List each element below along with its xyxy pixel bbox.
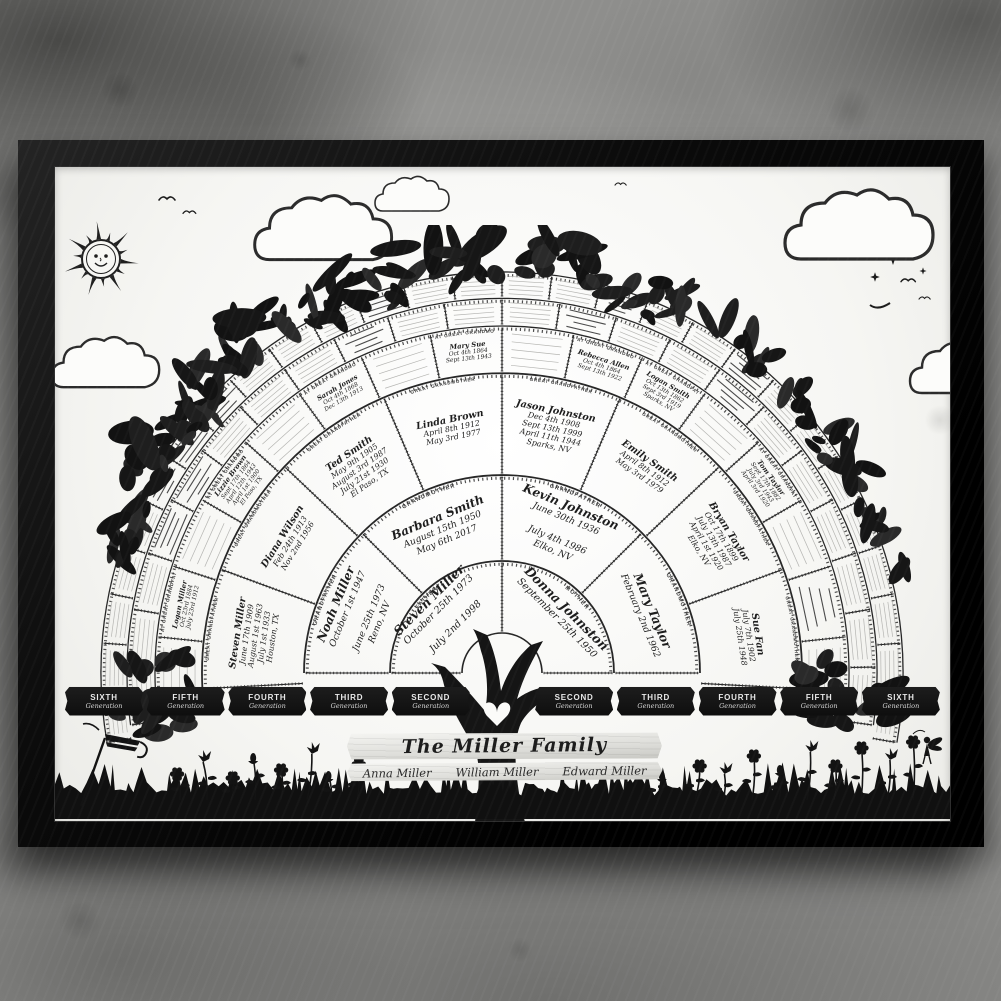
plaque-names-board: Anna Miller William Miller Edward Miller xyxy=(347,760,662,782)
generation-banner: FOURTHGeneration xyxy=(228,687,306,716)
person-segment: Mary SueOct 4th 1864Sept 13th 1943 xyxy=(444,339,492,364)
person-segment: Jason JohnstonDec 4th 1908Sept 13th 1999… xyxy=(506,397,596,458)
poster-frame: Steven MillerOctober 25th 1973July 2nd 1… xyxy=(18,140,984,847)
plaque-title-board: The Miller Family xyxy=(347,730,662,761)
person-segment: Barbara SmithAugust 15th 1950May 6th 201… xyxy=(388,492,494,564)
generation-banner: THIRDGeneration xyxy=(617,687,695,716)
generation-banner: SIXTHGeneration xyxy=(862,687,940,716)
person-segment: Bryan TaylorOct 17th 1899July 13th 1987A… xyxy=(677,499,753,583)
generation-banner: SECONDGeneration xyxy=(535,687,613,716)
family-title: The Miller Family xyxy=(402,734,608,758)
generation-banner: THIRDGeneration xyxy=(310,687,388,716)
generation-banners: SIXTHGenerationFIFTHGenerationFOURTHGene… xyxy=(65,685,940,717)
svg-text:GREAT GRANDFATHER: GREAT GRANDFATHER xyxy=(205,597,220,661)
cloud-icon xyxy=(375,176,449,211)
parent-name: Edward Miller xyxy=(562,763,646,778)
bird-icon xyxy=(159,197,175,200)
banner-gap xyxy=(473,701,531,702)
person-segment: Emily SmithApril 8th 1912May 3rd 1979 xyxy=(609,437,680,498)
photo-scene: Steven MillerOctober 25th 1973July 2nd 1… xyxy=(0,0,1001,1001)
parent-name: William Miller xyxy=(455,764,538,779)
bird-icon xyxy=(615,183,626,185)
person-segment: Steven MillerJune 17th 1909August 1st 19… xyxy=(227,596,283,675)
person-segment: Kevin JohnstonJune 30th 1936July 4th 198… xyxy=(502,480,620,575)
generation-banner: SIXTHGeneration xyxy=(65,687,143,716)
svg-text:GREAT GRANDMOTHER: GREAT GRANDMOTHER xyxy=(641,411,698,453)
person-segment: Ted SmithMay 9th 1905August 3rd 1987July… xyxy=(318,430,399,506)
person-segment: Logan MillerOct 23rd 1884July 23rd 1912 xyxy=(171,579,202,633)
generation-banner: FIFTHGeneration xyxy=(147,687,225,716)
svg-text:GREAT GRANDMOTHER: GREAT GRANDMOTHER xyxy=(784,596,799,662)
family-name-plaque: The Miller Family Anna Miller William Mi… xyxy=(347,730,662,782)
person-segment: Sue FanJuly 7th 1902July 25th 1948 xyxy=(731,603,767,666)
poster: Steven MillerOctober 25th 1973July 2nd 1… xyxy=(55,167,950,821)
parent-name: Anna Miller xyxy=(363,765,432,780)
generation-banner: FOURTHGeneration xyxy=(699,687,777,716)
person-segment: Linda BrownApril 8th 1912May 3rd 1977 xyxy=(414,408,488,449)
generation-banner: SECONDGeneration xyxy=(392,687,470,716)
person-segment: Diana WilsonFeb 24th 1913Nov 2nd 1956 xyxy=(259,503,321,579)
generation-banner: FIFTHGeneration xyxy=(780,687,858,716)
bird-icon xyxy=(183,211,196,213)
